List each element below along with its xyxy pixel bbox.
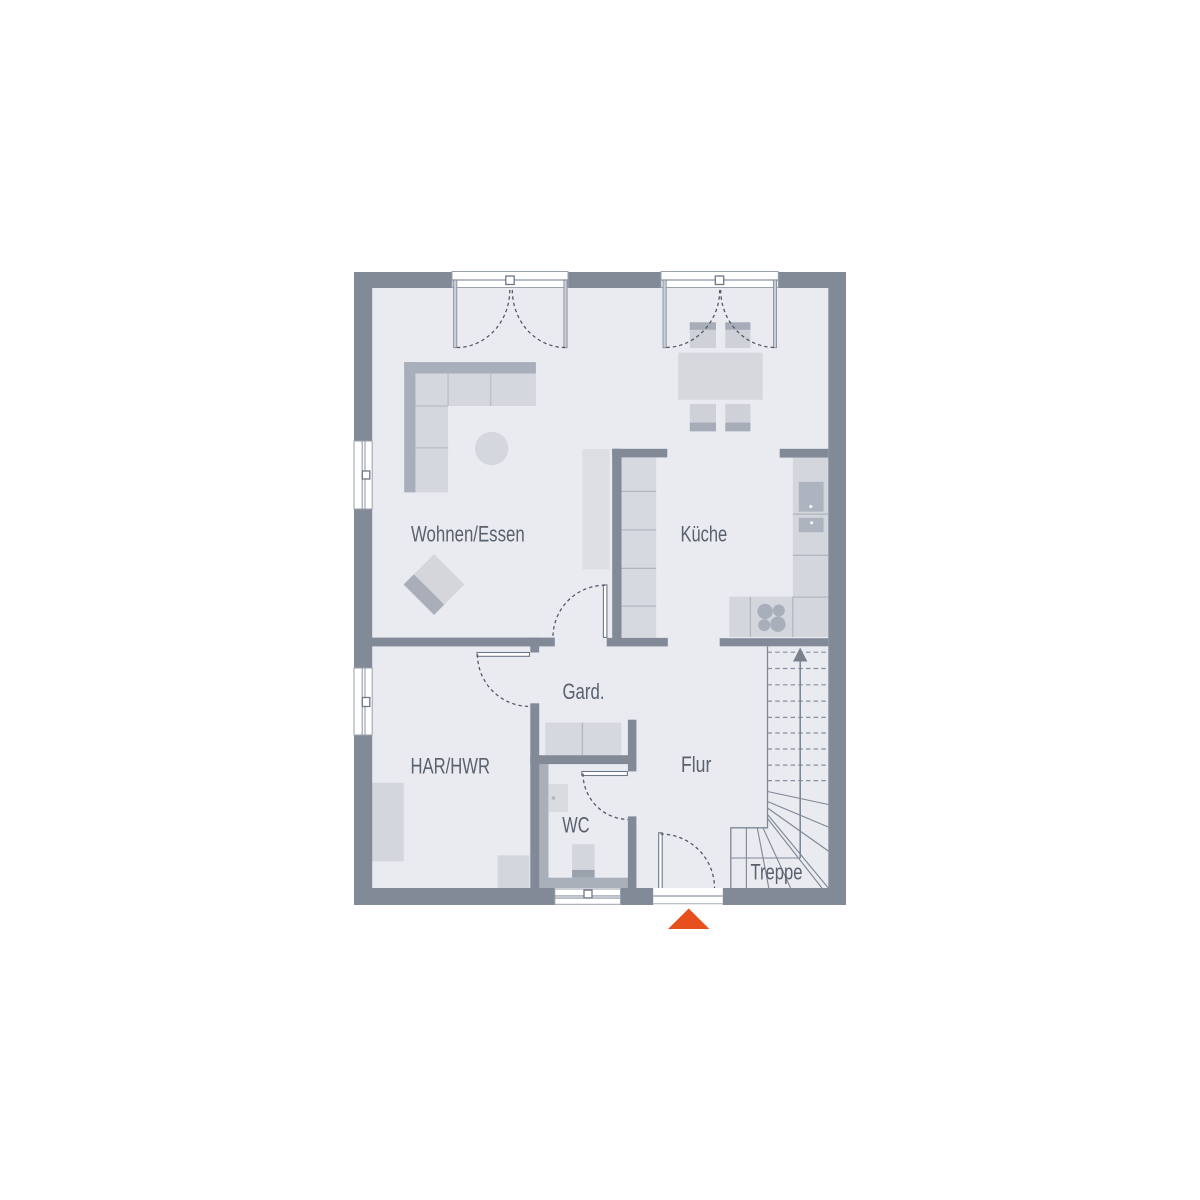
- svg-text:Flur: Flur: [681, 752, 711, 777]
- svg-text:HAR/HWR: HAR/HWR: [411, 753, 491, 778]
- svg-text:Gard.: Gard.: [563, 679, 605, 704]
- svg-text:Treppe: Treppe: [751, 860, 803, 885]
- svg-text:Wohnen/Essen: Wohnen/Essen: [411, 522, 525, 547]
- svg-text:Küche: Küche: [681, 522, 728, 547]
- svg-text:WC: WC: [562, 812, 589, 837]
